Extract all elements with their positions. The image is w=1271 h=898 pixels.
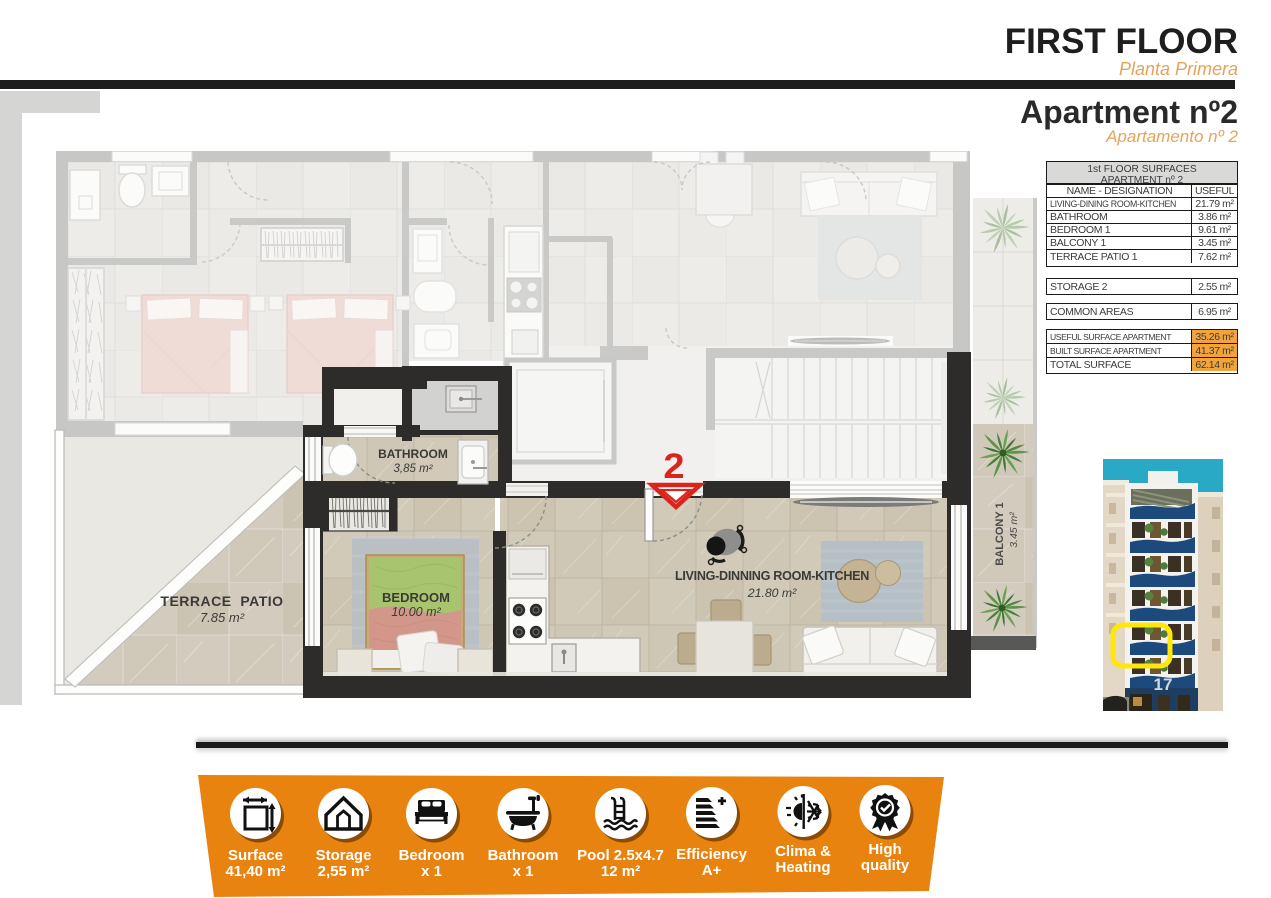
svg-text:A+: A+ [702, 862, 722, 879]
svg-text:Efficiency: Efficiency [676, 846, 748, 863]
svg-text:quality: quality [861, 857, 910, 874]
svg-text:Surface: Surface [228, 847, 283, 864]
svg-text:3,85 m²: 3,85 m² [394, 463, 434, 475]
svg-text:12 m²: 12 m² [601, 863, 640, 880]
svg-text:Pool 2.5x4.7: Pool 2.5x4.7 [577, 847, 664, 864]
svg-text:Storage: Storage [316, 847, 372, 864]
svg-text:17: 17 [1154, 675, 1173, 694]
svg-text:Heating: Heating [775, 859, 830, 876]
svg-text:Bedroom: Bedroom [399, 847, 465, 864]
svg-text:BALCONY 1: BALCONY 1 [994, 502, 1006, 565]
svg-text:LIVING-DINNING ROOM-KITCHEN: LIVING-DINNING ROOM-KITCHEN [675, 569, 869, 583]
svg-text:Clima &: Clima & [775, 843, 831, 860]
svg-text:10.00 m²: 10.00 m² [391, 605, 441, 619]
svg-text:2,55 m²: 2,55 m² [318, 863, 370, 880]
svg-text:3.45 m²: 3.45 m² [1008, 512, 1020, 548]
svg-text:BEDROOM: BEDROOM [382, 590, 450, 605]
svg-text:High: High [868, 841, 901, 858]
svg-text:TERRACE PATIO: TERRACE PATIO [160, 593, 283, 609]
svg-text:BATHROOM: BATHROOM [378, 447, 448, 461]
svg-text:21.80 m²: 21.80 m² [747, 586, 797, 600]
svg-text:7.85 m²: 7.85 m² [200, 610, 245, 625]
svg-text:Bathroom: Bathroom [488, 847, 559, 864]
svg-text:x 1: x 1 [513, 863, 534, 880]
svg-text:x 1: x 1 [421, 863, 442, 880]
svg-text:41,40 m²: 41,40 m² [225, 863, 285, 880]
svg-text:2: 2 [663, 446, 684, 485]
